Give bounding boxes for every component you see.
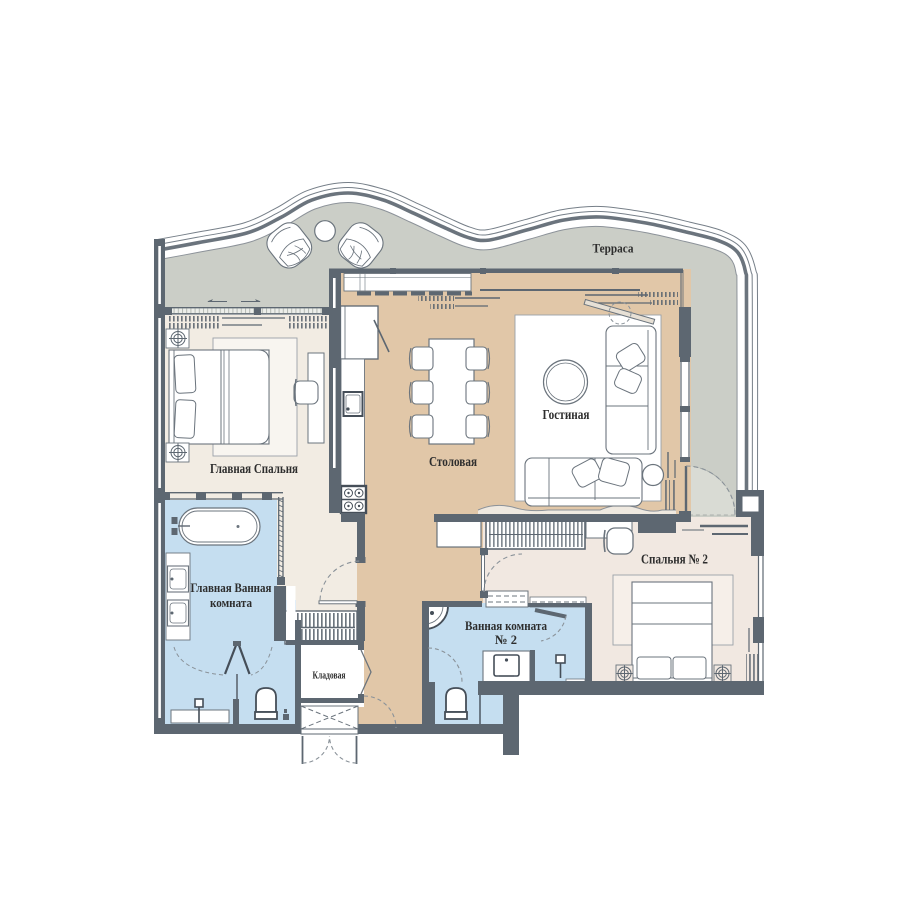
svg-text:Спальня № 2: Спальня № 2	[641, 552, 708, 567]
svg-text:Терраса: Терраса	[593, 241, 634, 256]
svg-text:Ванная комната: Ванная комната	[465, 618, 547, 633]
svg-text:комната: комната	[210, 595, 252, 610]
svg-text:Главная Спальня: Главная Спальня	[210, 461, 298, 476]
svg-text:№ 2: № 2	[495, 632, 517, 647]
svg-text:Столовая: Столовая	[429, 454, 477, 469]
svg-text:Главная Ванная: Главная Ванная	[191, 580, 272, 595]
svg-text:Кладовая: Кладовая	[313, 671, 346, 682]
svg-text:Гостиная: Гостиная	[543, 407, 590, 422]
